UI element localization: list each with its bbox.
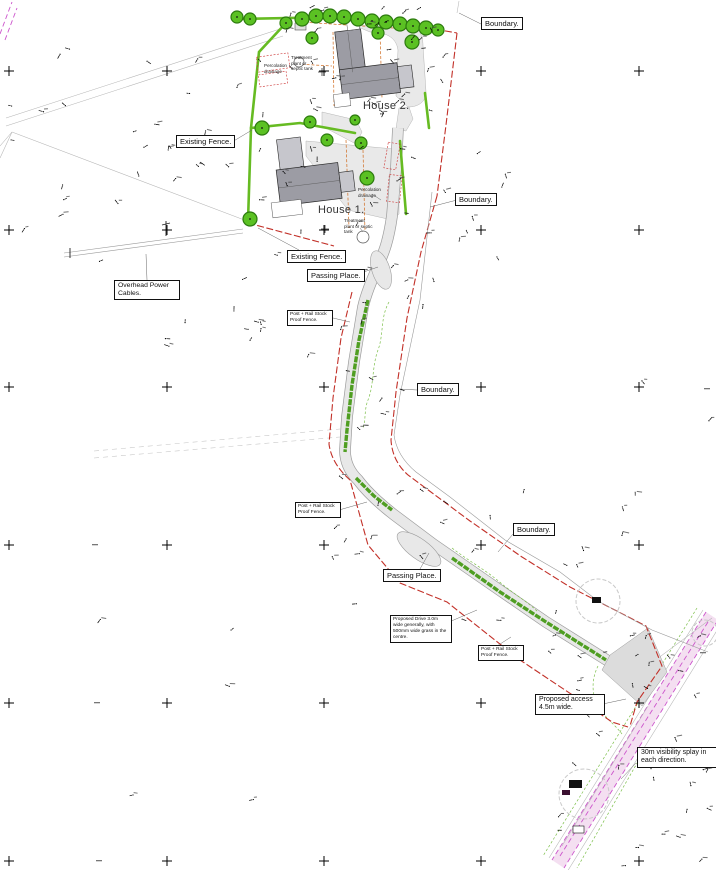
label-house-2: House 2. — [363, 100, 409, 112]
grass-centre-strips — [345, 300, 606, 660]
note-treatment-1: Treatment plant or septic tank — [344, 218, 374, 235]
site-plan-drawing: Boundary. Existing Fence. Boundary. Exis… — [0, 0, 716, 870]
existing-boundary-grey — [394, 192, 708, 652]
power-pole-icon — [162, 221, 170, 236]
label-boundary-mid: Boundary. — [417, 383, 459, 396]
note-treatment-2: Treatment plant or septic tank — [291, 55, 315, 72]
spot-levels — [8, 5, 714, 866]
label-post-rail-3: Post + Rail Stock Proof Fence. — [478, 645, 524, 661]
label-passing-place-1: Passing Place. — [307, 269, 365, 282]
label-boundary-top: Boundary. — [481, 17, 523, 30]
leader-lines — [146, 13, 636, 779]
overhead-power-cables — [64, 221, 243, 258]
post-rail-fence-south — [329, 292, 628, 727]
label-existing-fence-2: Existing Fence. — [287, 250, 346, 263]
survey-cross — [318, 68, 326, 76]
label-post-rail-1: Post + Rail Stock Proof Fence. — [287, 310, 333, 326]
label-proposed-access: Proposed access 4.5m wide. — [535, 694, 605, 715]
note-percolation-1: Percolation drainage — [358, 187, 385, 198]
post-rail-fence-north — [391, 196, 662, 726]
label-overhead-power: Overhead Power Cables. — [114, 280, 180, 300]
survey-cross — [321, 225, 329, 233]
label-post-rail-2: Post + Rail Stock Proof Fence. — [295, 502, 341, 518]
label-boundary-right: Boundary. — [455, 193, 497, 206]
label-passing-place-2: Passing Place. — [383, 569, 441, 582]
visibility-splay-line-sw — [562, 706, 648, 846]
label-house-1: House 1. — [318, 204, 364, 216]
plan-canvas — [0, 0, 716, 870]
label-existing-fence-1: Existing Fence. — [176, 135, 235, 148]
note-percolation-2: Percolation drainage — [264, 63, 291, 74]
label-proposed-drive: Proposed Drive 3.0m wide generally, with… — [390, 615, 452, 643]
label-visibility-splay: 30m visibility splay in each direction. — [637, 747, 716, 768]
label-boundary-low: Boundary. — [513, 523, 555, 536]
